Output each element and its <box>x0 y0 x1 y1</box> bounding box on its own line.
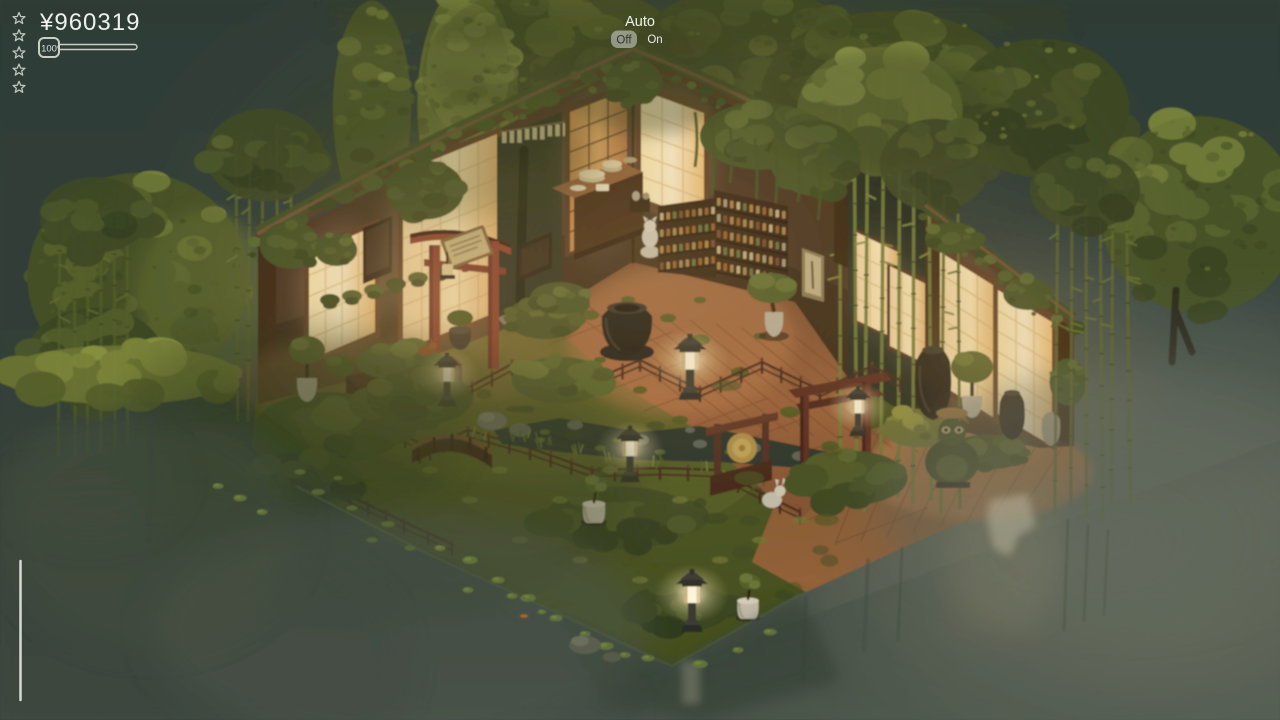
svg-text:100: 100 <box>41 44 57 55</box>
svg-text:Off: Off <box>616 35 632 47</box>
svg-text:On: On <box>647 34 662 46</box>
svg-text:¥960319: ¥960319 <box>39 9 140 36</box>
svg-text:Auto: Auto <box>625 14 655 30</box>
